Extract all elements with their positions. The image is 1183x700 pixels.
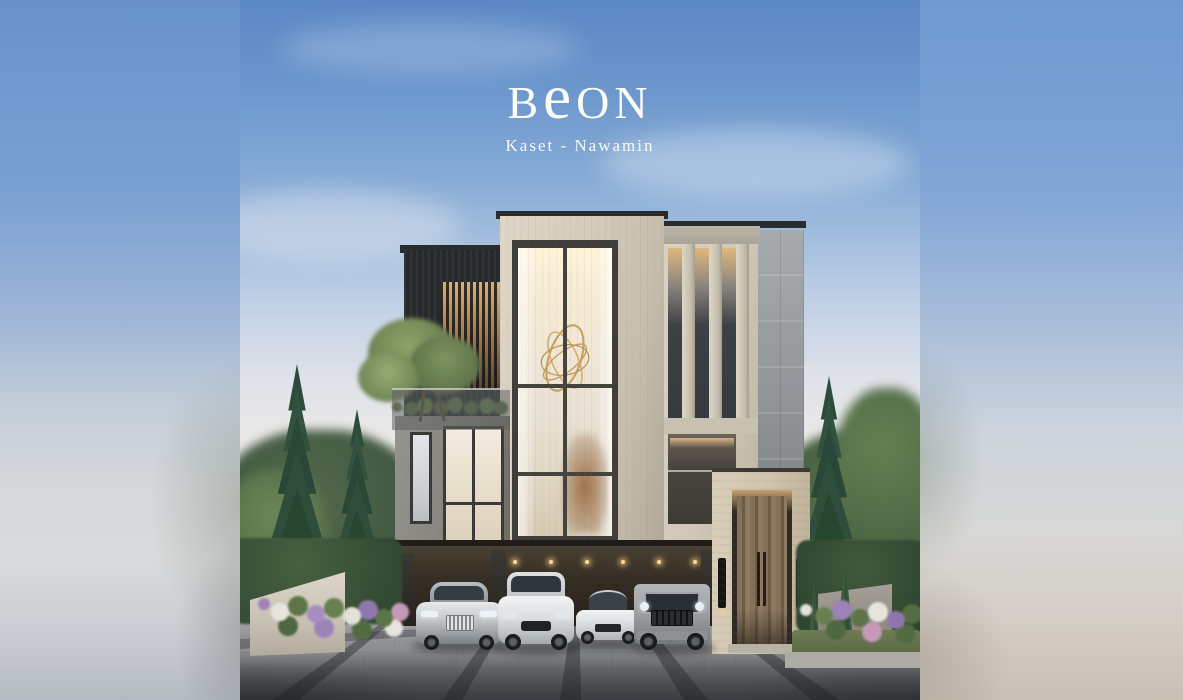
front-grille <box>521 621 551 631</box>
sheer-curtain <box>518 248 533 536</box>
wheel <box>505 634 521 650</box>
facade-fin <box>736 244 749 424</box>
tall-window <box>722 248 736 420</box>
logo-tagline: Kaset - Nawamin <box>506 136 655 156</box>
narrow-window <box>410 432 432 524</box>
windshield <box>511 576 561 592</box>
wood-slat-front-door <box>737 496 787 644</box>
structural-pillar <box>401 554 414 624</box>
wheel <box>581 631 594 644</box>
project-logo: BeON Kaset - Nawamin <box>506 74 655 156</box>
sports-canopy <box>589 590 627 610</box>
double-height-window-glass <box>518 248 612 536</box>
front-intake <box>595 624 621 632</box>
window-mullion <box>518 384 612 388</box>
spiral-staircase-glimpse <box>562 432 608 532</box>
white-sports-car <box>576 588 640 644</box>
chrome-grille <box>446 615 474 631</box>
headlight <box>580 617 592 620</box>
round-headlight <box>695 602 704 611</box>
round-headlight <box>640 602 649 611</box>
terrace-tree-canopy <box>410 336 480 394</box>
sheer-curtain <box>597 248 612 536</box>
ceiling-light-glow <box>518 248 612 274</box>
logo-letter-b: B <box>507 77 543 128</box>
headlight <box>421 611 438 617</box>
wide-window <box>443 426 504 544</box>
glass-parapet <box>392 388 510 430</box>
blurred-backdrop-right <box>920 0 1183 700</box>
window-mullion <box>472 429 475 541</box>
facade-fin <box>682 244 695 424</box>
wheel <box>551 634 567 650</box>
headlight <box>480 611 497 617</box>
logo-letters-on: ON <box>576 77 652 128</box>
door-handle <box>763 552 766 606</box>
silver-luxury-sedan <box>416 578 502 650</box>
front-grille <box>651 610 693 626</box>
wheel <box>687 633 704 650</box>
concrete-volume-left <box>395 416 510 546</box>
logo-letter-e: e <box>543 62 576 132</box>
windshield <box>434 586 484 600</box>
wheel <box>640 633 657 650</box>
facade-fin <box>709 244 722 424</box>
wheel <box>424 635 439 650</box>
poster-canvas: BeON Kaset - Nawamin <box>0 0 1183 700</box>
headlight <box>555 613 569 618</box>
window-mullion <box>518 472 612 476</box>
white-crossover-suv <box>498 570 574 650</box>
cornice-band <box>662 226 760 244</box>
tall-window <box>695 248 709 420</box>
logo-wordmark: BeON <box>506 74 655 126</box>
sculptural-chandelier-icon <box>537 300 593 420</box>
door-recess <box>732 490 792 648</box>
door-handle <box>757 552 760 606</box>
headlight <box>503 613 517 618</box>
flower-bed-left <box>258 598 270 610</box>
recess-light-glow <box>732 490 792 512</box>
interior-glow <box>670 438 734 448</box>
double-height-window-frame <box>512 240 618 542</box>
recessed-downlights <box>513 560 517 564</box>
cream-stone-tower <box>500 216 664 548</box>
wheel <box>479 635 494 650</box>
flower-bed-right <box>800 604 812 616</box>
blurred-backdrop-left <box>0 0 240 700</box>
window-mullion <box>446 502 501 505</box>
spandrel-band <box>664 418 758 434</box>
window-mullion <box>563 248 567 536</box>
tall-window <box>668 248 682 420</box>
wall-sconce <box>718 558 726 608</box>
hero-architectural-render: BeON Kaset - Nawamin <box>240 0 920 700</box>
entry-walkway <box>785 652 920 668</box>
gray-offroad-suv <box>634 564 710 650</box>
